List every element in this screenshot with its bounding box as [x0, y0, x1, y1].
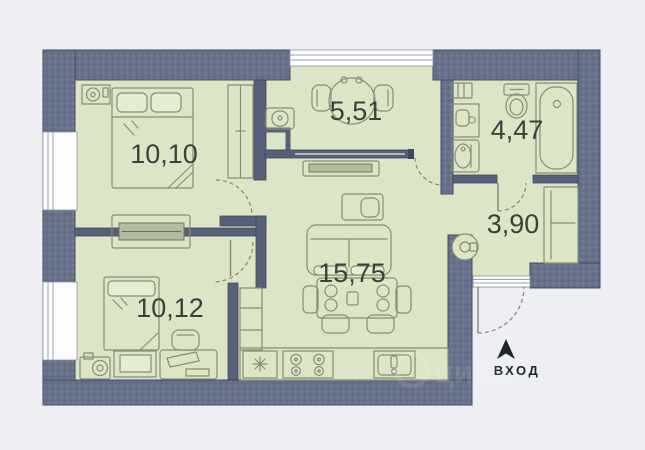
partition-end-cap: [408, 149, 414, 159]
window-bedroom2: [43, 282, 77, 360]
wall-bath-bottom-right: [533, 175, 578, 183]
wall-top-left: [43, 50, 290, 80]
watermark-text: циан: [434, 354, 510, 390]
floor-plan: 10,10 5,51 4,47 3,90 15,75 10,12 ВХОД ци…: [0, 0, 645, 450]
room-area-label-bathroom: 4,47: [491, 115, 544, 145]
room-area-label-living-room: 15,75: [318, 258, 386, 288]
wall-bedroom2-right: [228, 283, 238, 380]
wall-right: [578, 50, 600, 288]
room-area-label-kitchen-niche: 5,51: [330, 96, 383, 126]
wall-top-right: [433, 50, 600, 80]
wall-hall-bottom: [530, 263, 600, 288]
entrance-threshold: [473, 276, 530, 287]
room-area-label-bedroom1: 10,10: [130, 139, 198, 169]
room-area-label-hallway: 3,90: [487, 209, 540, 239]
wall-bathroom-left: [441, 80, 453, 194]
window-bedroom1: [43, 132, 77, 210]
wall-bath-bottom-left: [453, 175, 497, 183]
wall-corridor-stub: [256, 216, 266, 288]
water-heater-icon: [452, 234, 478, 260]
room-area-label-bedroom2: 10,12: [136, 293, 204, 323]
window-kitchen-niche: [290, 50, 433, 66]
floor-plan-drawing: 10,10 5,51 4,47 3,90 15,75 10,12 ВХОД ци…: [0, 0, 645, 450]
